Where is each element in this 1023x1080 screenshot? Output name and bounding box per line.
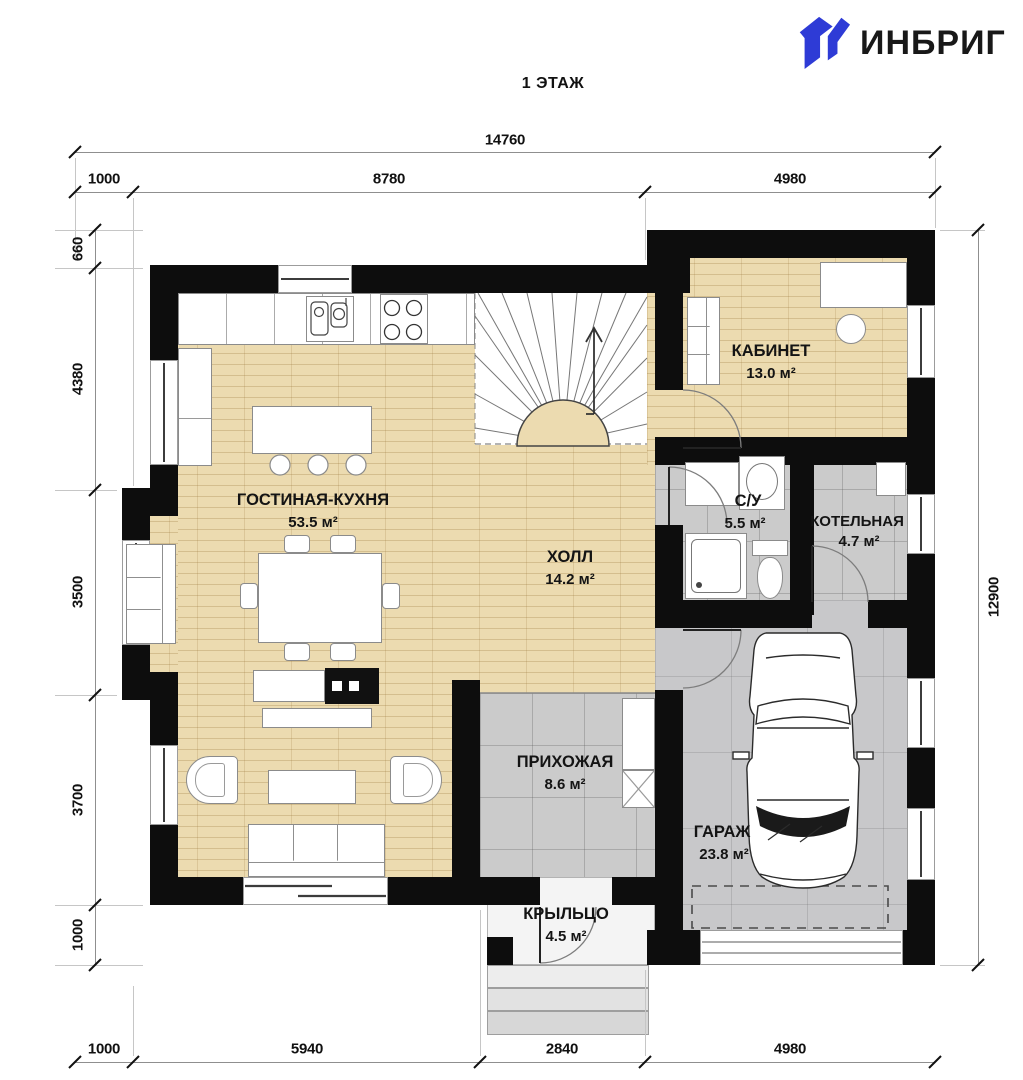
extension-line xyxy=(55,905,143,906)
hallway-closet-x xyxy=(622,770,655,808)
wall-segment xyxy=(150,700,178,745)
stairwell-floor xyxy=(475,293,647,445)
logo-shape-right xyxy=(828,18,850,61)
wall-segment xyxy=(655,690,683,965)
kitchen-stove xyxy=(380,294,428,344)
dim-line xyxy=(75,1062,935,1063)
dim-top-2: 8780 xyxy=(373,172,405,187)
wall-segment xyxy=(868,600,935,628)
cabinet-sofa xyxy=(687,297,720,385)
dining-chair xyxy=(330,643,356,661)
bay-sofa xyxy=(126,544,176,644)
window-garage-lower xyxy=(907,808,935,880)
cabinet-chair xyxy=(836,314,866,344)
dining-table xyxy=(258,553,382,643)
wall-segment xyxy=(150,265,178,360)
window-living-upper xyxy=(150,360,178,465)
boiler-unit xyxy=(876,462,906,496)
bath-counter xyxy=(685,462,739,506)
window-cabinet xyxy=(907,305,935,378)
dining-chair xyxy=(284,535,310,553)
wall-segment xyxy=(907,748,935,808)
dining-chair xyxy=(330,535,356,553)
brand-name: ИНБРИГ xyxy=(860,24,1006,63)
hallway-closet xyxy=(622,698,655,770)
extension-line xyxy=(480,910,481,1056)
extension-line xyxy=(133,986,134,1056)
extension-line xyxy=(55,268,143,269)
dim-total-height: 12900 xyxy=(987,577,1002,617)
wall-segment xyxy=(150,877,243,905)
wall-segment xyxy=(352,265,660,293)
dim-top-1: 1000 xyxy=(88,172,120,187)
porch-step-3 xyxy=(487,1011,649,1035)
shower-drain xyxy=(696,582,702,588)
toilet-tank xyxy=(752,540,788,556)
dim-bottom-3: 2840 xyxy=(546,1042,578,1057)
wall-segment xyxy=(388,877,540,905)
dining-chair xyxy=(382,583,400,609)
dim-line xyxy=(75,152,935,153)
room-area-cabinet: 13.0 м² xyxy=(746,365,795,383)
brand-logo-icon xyxy=(793,12,851,70)
floor-plan-canvas: ИНБРИГ 1 ЭТАЖ xyxy=(0,0,1023,1080)
dim-bottom-1: 1000 xyxy=(88,1042,120,1057)
wall-segment xyxy=(122,672,178,700)
floor-garage xyxy=(655,600,935,965)
living-sofa xyxy=(248,824,385,877)
room-area-hallway: 8.6 м² xyxy=(544,776,585,794)
room-label-cabinet: КАБИНЕТ xyxy=(732,342,811,362)
wall-segment xyxy=(122,645,150,672)
extension-line xyxy=(645,970,646,1056)
kitchen-tall-cabinet xyxy=(178,348,212,466)
wall-segment xyxy=(647,930,700,965)
porch-step-2 xyxy=(487,988,649,1011)
toilet-bowl xyxy=(757,557,783,599)
dim-total-width: 14760 xyxy=(485,133,525,148)
window-kitchen xyxy=(278,265,352,293)
dim-left-2: 4380 xyxy=(71,363,86,395)
wall-segment xyxy=(907,230,935,305)
tv-screen xyxy=(325,668,379,704)
armchair-left xyxy=(186,756,238,804)
wall-segment xyxy=(655,293,683,390)
room-area-living: 53.5 м² xyxy=(288,514,337,532)
extension-line xyxy=(55,230,143,231)
room-label-living: ГОСТИНАЯ-КУХНЯ xyxy=(237,491,389,511)
dim-top-3: 4980 xyxy=(774,172,806,187)
window-slider-living xyxy=(243,877,388,905)
window-garage-upper xyxy=(907,678,935,748)
dim-line xyxy=(978,230,979,965)
room-label-porch: КРЫЛЬЦО xyxy=(523,905,609,925)
kitchen-island xyxy=(252,406,372,454)
cabinet-desk xyxy=(820,262,907,308)
dim-line xyxy=(95,230,96,965)
garage-door-opening xyxy=(700,930,903,965)
wall-segment xyxy=(452,680,480,877)
dining-chair xyxy=(240,583,258,609)
dim-line xyxy=(75,192,935,193)
dim-left-3: 3500 xyxy=(71,576,86,608)
wall-segment xyxy=(487,937,513,965)
shower xyxy=(685,533,747,599)
wall-segment xyxy=(655,600,812,628)
wall-segment xyxy=(122,488,178,516)
extension-line xyxy=(55,490,117,491)
room-area-boiler: 4.7 м² xyxy=(838,533,879,551)
wall-segment xyxy=(122,516,150,540)
room-label-bathroom: С/У xyxy=(735,492,762,512)
logo-shape-left xyxy=(800,17,833,69)
extension-line xyxy=(645,198,646,260)
armchair-cushion xyxy=(195,763,225,797)
wall-segment xyxy=(903,930,935,965)
dim-left-4: 3700 xyxy=(71,784,86,816)
wall-segment xyxy=(907,378,935,494)
wall-segment xyxy=(647,230,935,258)
armchair-right xyxy=(390,756,442,804)
dim-left-1: 660 xyxy=(71,237,86,261)
dim-bottom-4: 4980 xyxy=(774,1042,806,1057)
extension-line xyxy=(133,198,134,486)
room-label-hallway: ПРИХОЖАЯ xyxy=(517,753,614,773)
tv-console xyxy=(253,670,325,702)
room-area-hall: 14.2 м² xyxy=(545,571,594,589)
extension-line xyxy=(55,965,143,966)
room-area-porch: 4.5 м² xyxy=(545,928,586,946)
extension-line xyxy=(55,695,117,696)
window-living-lower xyxy=(150,745,178,825)
porch-step-1 xyxy=(487,965,649,988)
wall-segment xyxy=(612,877,655,905)
armchair-cushion xyxy=(403,763,433,797)
room-area-bathroom: 5.5 м² xyxy=(724,515,765,533)
room-label-garage: ГАРАЖ xyxy=(694,823,751,843)
tv-bench xyxy=(262,708,372,728)
window-boiler xyxy=(907,494,935,554)
room-area-garage: 23.8 м² xyxy=(699,846,748,864)
dim-bottom-2: 5940 xyxy=(291,1042,323,1057)
page-title: 1 ЭТАЖ xyxy=(522,75,585,93)
room-label-hall: ХОЛЛ xyxy=(547,548,593,568)
coffee-table xyxy=(268,770,356,804)
room-label-boiler: КОТЕЛЬНАЯ xyxy=(810,513,904,531)
dim-left-5: 1000 xyxy=(71,919,86,951)
dining-chair xyxy=(284,643,310,661)
kitchen-sink xyxy=(306,296,354,342)
